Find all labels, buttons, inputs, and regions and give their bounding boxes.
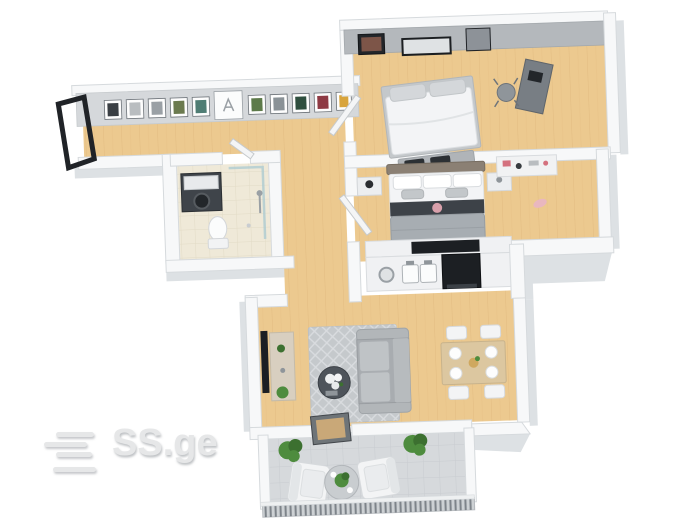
round-sink [379,267,393,281]
center-frame [214,91,243,120]
corridor-floor [279,116,350,306]
balcony-glass-door [310,413,351,445]
watermark-brand: SS.ge [112,424,218,462]
coffee-table [318,366,351,399]
sofa [356,328,411,414]
watermark: SS.ge [44,424,218,472]
bedroom-1-bed [381,76,483,173]
bedroom-tv [411,239,479,253]
ss-logo-icon [44,424,96,472]
toilet [207,216,228,249]
dining-table [441,341,506,385]
floor-plan-image: SS.ge [0,0,700,525]
armchair-right [357,456,401,500]
dresser [496,155,557,177]
balcony-table [324,465,359,500]
stove [442,253,481,288]
tv-console [269,332,295,401]
armchair-left [287,461,330,506]
washing-machine [181,172,222,211]
